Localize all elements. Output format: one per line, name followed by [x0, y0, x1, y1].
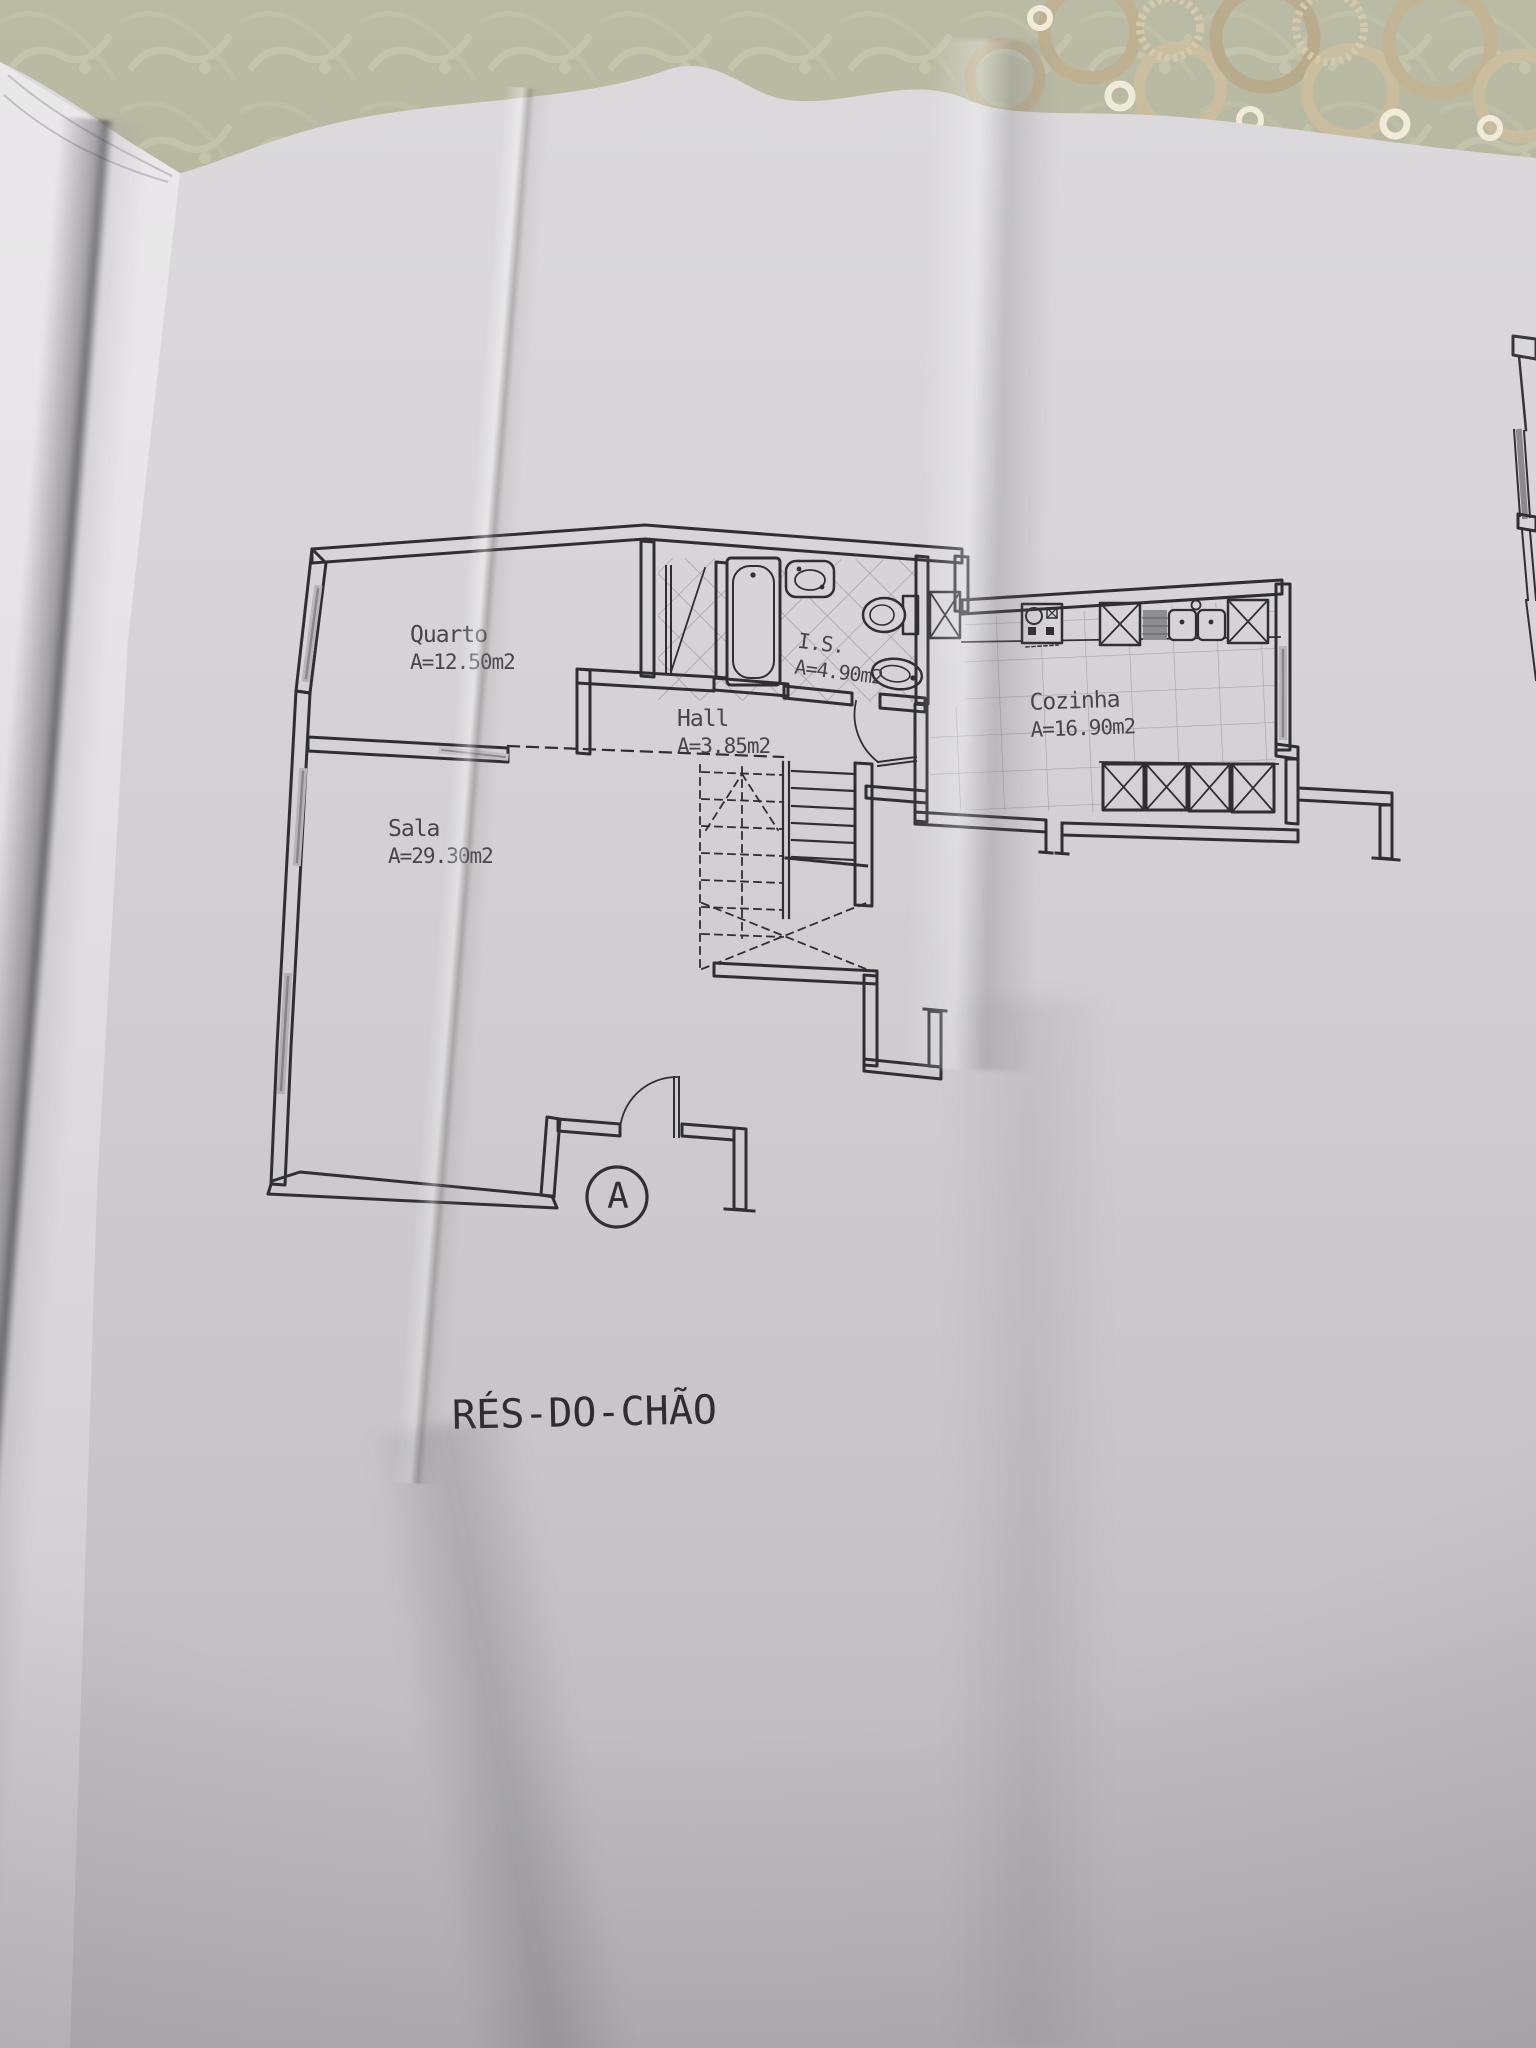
room-name: Hall	[677, 706, 770, 732]
room-label-hall: Hall A=3.85m2	[677, 706, 770, 758]
room-name: Cozinha	[1029, 686, 1135, 716]
room-label-sala: Sala A=29.30m2	[388, 816, 493, 868]
room-area: A=29.30m2	[388, 844, 493, 868]
room-area: A=12.50m2	[410, 650, 515, 674]
bathtub-icon	[727, 558, 780, 685]
washbasin-icon	[786, 561, 834, 597]
photo-of-floor-plan-page: Quarto A=12.50m2 Sala A=29.30m2 Hall A=3…	[0, 0, 1536, 2048]
room-name: Quarto	[410, 622, 515, 648]
toilet-icon	[863, 596, 918, 634]
room-area: A=16.90m2	[1030, 714, 1136, 742]
base-cabinets-icon	[1100, 762, 1278, 812]
room-label-quarto: Quarto A=12.50m2	[410, 622, 515, 674]
scene	[0, 0, 1536, 2048]
section-marker-letter: A	[599, 1176, 637, 1217]
room-label-is: I.S. A=4.90m2	[793, 629, 887, 689]
floor-plan-title: RÉS-DO-CHÃO	[452, 1387, 718, 1439]
counter-segment	[1143, 610, 1167, 640]
crossed-cabinet-icon	[1228, 600, 1268, 643]
room-area: A=3.85m2	[677, 734, 770, 758]
room-label-cozinha: Cozinha A=16.90m2	[1029, 686, 1136, 742]
right-page	[0, 62, 1536, 2048]
crossed-cabinet-icon	[1100, 603, 1140, 645]
book-pages	[0, 62, 1536, 2048]
room-name: Sala	[388, 816, 493, 842]
